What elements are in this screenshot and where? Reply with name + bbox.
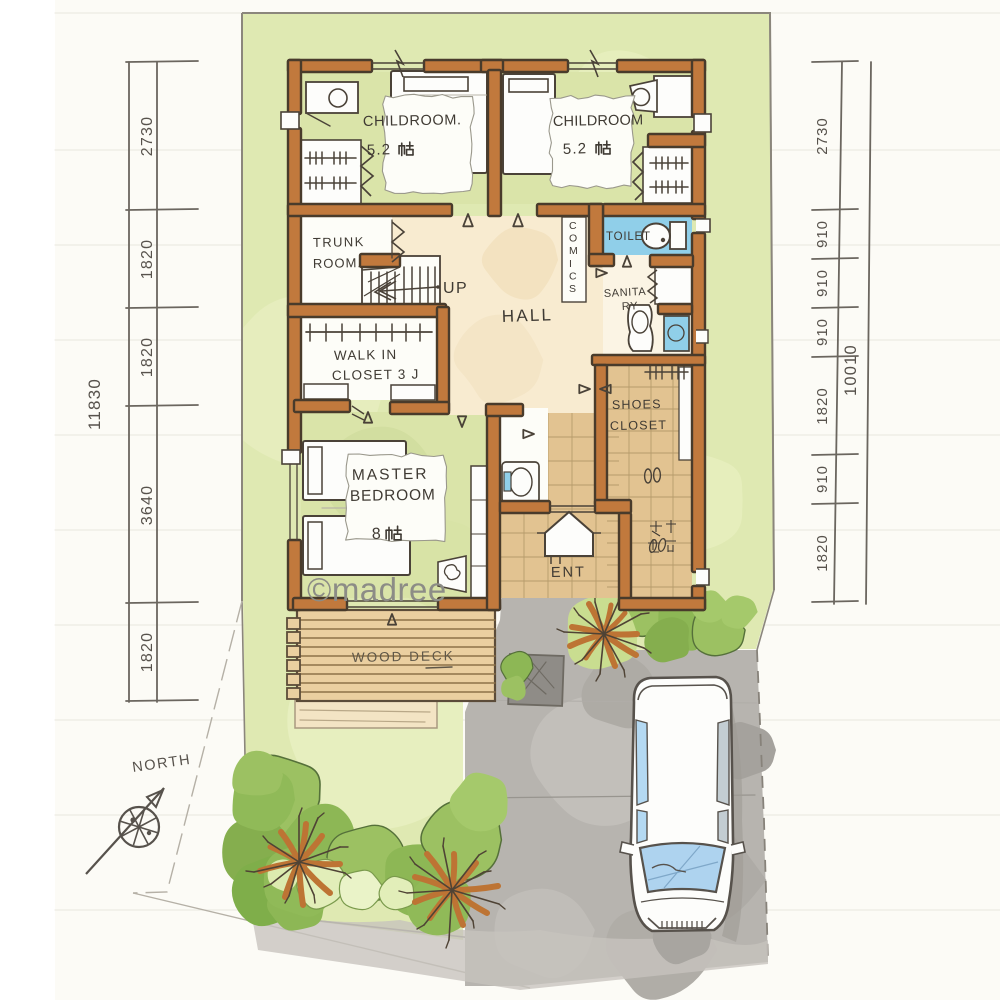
svg-text:5.2: 5.2 [563, 140, 588, 158]
svg-text:910: 910 [814, 465, 831, 493]
svg-text:8: 8 [372, 526, 382, 543]
svg-text:ENT: ENT [551, 564, 586, 581]
svg-text:910: 910 [814, 318, 831, 346]
svg-text:3640: 3640 [139, 485, 156, 525]
svg-text:RY: RY [622, 300, 639, 313]
svg-text:I: I [569, 258, 572, 270]
svg-text:©madree: ©madree [307, 571, 447, 608]
svg-text:10010: 10010 [842, 344, 860, 396]
svg-text:910: 910 [814, 220, 831, 248]
svg-text:C: C [569, 220, 577, 232]
svg-text:1820: 1820 [139, 239, 156, 279]
svg-text:TRUNK: TRUNK [313, 234, 365, 250]
svg-text:2730: 2730 [139, 116, 156, 156]
svg-text:11830: 11830 [85, 378, 104, 430]
svg-text:SHOES: SHOES [612, 397, 662, 412]
svg-text:910: 910 [814, 269, 831, 297]
svg-text:O: O [569, 233, 577, 245]
svg-text:TOILET: TOILET [606, 231, 651, 243]
svg-text:SANITA: SANITA [604, 286, 647, 300]
svg-text:CLOSET: CLOSET [610, 418, 667, 433]
svg-text:CHILDROOM.: CHILDROOM. [363, 112, 462, 130]
svg-text:WALK IN: WALK IN [334, 347, 398, 363]
svg-text:BEDROOM: BEDROOM [350, 487, 436, 505]
svg-text:CHILDROOM: CHILDROOM [553, 112, 644, 130]
svg-text:1820: 1820 [814, 534, 831, 571]
svg-text:1820: 1820 [814, 387, 831, 424]
svg-text:WOOD DECK: WOOD DECK [352, 648, 455, 665]
svg-text:MASTER: MASTER [352, 466, 429, 484]
svg-text:HALL: HALL [501, 305, 553, 326]
svg-text:2730: 2730 [814, 117, 831, 154]
svg-text:M: M [569, 245, 578, 257]
svg-text:1820: 1820 [139, 337, 156, 377]
svg-text:CLOSET 3 J: CLOSET 3 J [332, 366, 420, 383]
svg-text:C: C [569, 270, 577, 282]
svg-text:S: S [569, 283, 576, 295]
svg-text:1820: 1820 [139, 632, 156, 672]
svg-text:UP: UP [443, 280, 468, 297]
svg-text:5.2: 5.2 [367, 141, 392, 159]
svg-text:ROOM.: ROOM. [313, 255, 362, 271]
